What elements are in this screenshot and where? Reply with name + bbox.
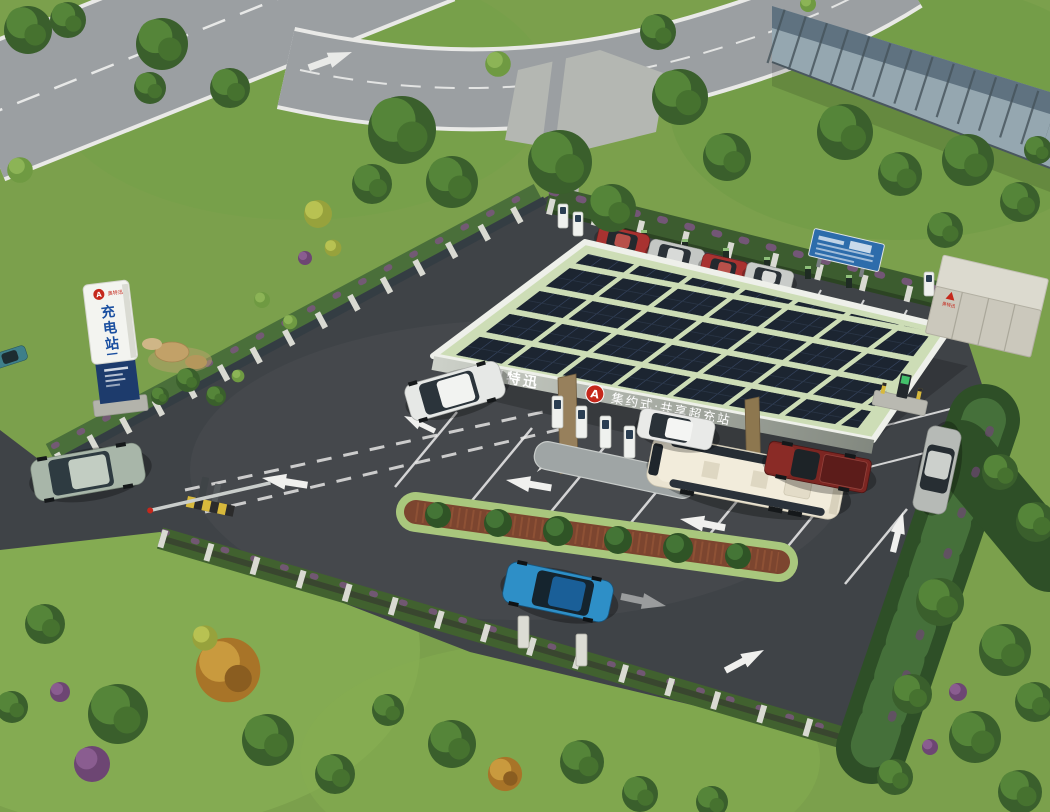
kiosk-screen	[900, 375, 909, 384]
shrub	[50, 682, 70, 702]
shrub	[206, 386, 226, 406]
tree	[588, 184, 636, 232]
shrub	[949, 683, 967, 701]
tree	[927, 212, 963, 248]
scene-svg: 奥特迅 A 集约式·共享超充站	[0, 0, 1050, 812]
shrub	[283, 315, 297, 329]
tree	[979, 624, 1031, 676]
shrub	[922, 739, 938, 755]
tree	[622, 776, 658, 812]
tree	[892, 674, 932, 714]
pylon-dash-text: 一	[106, 348, 119, 362]
tree	[352, 164, 392, 204]
shrub	[176, 368, 200, 392]
tree-autumn	[488, 757, 522, 791]
tree	[916, 578, 964, 626]
tree	[88, 684, 148, 744]
tree	[134, 72, 166, 104]
tree	[304, 200, 332, 228]
tree	[210, 68, 250, 108]
tree	[7, 157, 33, 183]
tree	[368, 96, 436, 164]
tree	[428, 720, 476, 768]
tree	[315, 754, 355, 794]
tree	[192, 625, 217, 650]
shrub	[232, 370, 245, 383]
charging-pile	[573, 212, 583, 236]
tree	[817, 104, 873, 160]
shrub	[74, 746, 110, 782]
charging-pile	[600, 416, 611, 448]
tree	[485, 51, 511, 77]
charging-pile	[552, 396, 563, 428]
tree	[982, 454, 1018, 490]
tree	[528, 130, 592, 194]
tree	[560, 740, 604, 784]
tree	[949, 711, 1001, 763]
tree	[878, 152, 922, 196]
tree	[50, 2, 86, 38]
tree	[136, 18, 188, 70]
tree	[942, 134, 994, 186]
tree	[1000, 182, 1040, 222]
tree	[877, 759, 913, 795]
tree	[4, 6, 52, 54]
tree	[998, 770, 1042, 812]
charging-pile	[576, 406, 587, 438]
charging-pile	[924, 272, 934, 296]
charging-station-rendering: 奥特迅 A 集约式·共享超充站	[0, 0, 1050, 812]
tree	[372, 694, 404, 726]
charging-pile	[558, 204, 568, 228]
tree	[325, 240, 342, 257]
tree	[426, 156, 478, 208]
shrub	[151, 387, 169, 405]
tree	[640, 14, 676, 50]
tree	[703, 133, 751, 181]
tree	[242, 714, 294, 766]
tree	[652, 69, 708, 125]
charging-pile	[624, 426, 635, 458]
shrub	[298, 251, 312, 265]
shrub	[254, 292, 270, 308]
tree	[25, 604, 65, 644]
